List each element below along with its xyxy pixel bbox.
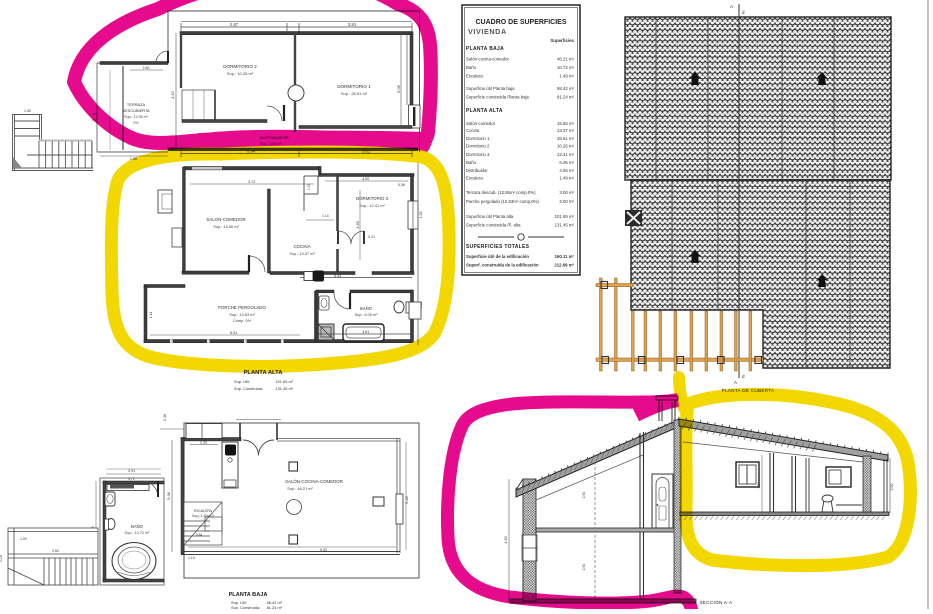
svg-text:101.69 m²: 101.69 m²: [275, 379, 293, 384]
svg-text:Sup.: 10.63 m²: Sup.: 10.63 m²: [229, 312, 255, 317]
svg-text:SUPERFICIES TOTALES: SUPERFICIES TOTALES: [466, 244, 530, 250]
svg-text:Superficie útil Planta alta: Superficie útil Planta alta: [466, 214, 514, 219]
svg-text:Dormitorio 3: Dormitorio 3: [466, 152, 490, 157]
svg-text:Sup.: 13.37 m²: Sup.: 13.37 m²: [289, 251, 315, 256]
svg-text:10.72 m²: 10.72 m²: [557, 65, 575, 70]
svg-text:2.36: 2.36: [163, 414, 167, 421]
svg-text:6.28: 6.28: [405, 496, 409, 503]
svg-text:Salón-comedor: Salón-comedor: [466, 121, 496, 126]
svg-text:Sup.: 6.05 m²: Sup.: 6.05 m²: [355, 313, 379, 317]
svg-text:Comp. 0%: Comp. 0%: [233, 318, 252, 323]
svg-text:2.91: 2.91: [128, 469, 135, 473]
svg-text:PLANTA BAJA: PLANTA BAJA: [229, 592, 268, 598]
svg-text:3.21: 3.21: [368, 235, 375, 239]
svg-text:ESCALERA: ESCALERA: [194, 509, 213, 513]
svg-text:1.49 m²: 1.49 m²: [559, 176, 574, 181]
svg-text:Superficie construida Pl. alta: Superficie construida Pl. alta: [466, 223, 521, 228]
svg-text:2.11: 2.11: [149, 312, 153, 319]
svg-text:Superficies: Superficies: [550, 38, 574, 43]
svg-text:3.81: 3.81: [348, 22, 357, 27]
svg-text:13.37 m²: 13.37 m²: [557, 128, 575, 133]
svg-text:2.18: 2.18: [0, 555, 3, 562]
svg-text:2.54: 2.54: [757, 482, 761, 489]
svg-text:0%: 0%: [133, 121, 139, 125]
svg-text:Escalera: Escalera: [466, 176, 483, 181]
svg-text:1.14: 1.14: [322, 214, 329, 218]
svg-text:131.45 m²: 131.45 m²: [275, 386, 293, 391]
svg-text:Superficie útil de la edificac: Superficie útil de la edificación: [466, 254, 529, 259]
svg-text:Sup.: 10.72 m²: Sup.: 10.72 m²: [125, 531, 151, 535]
svg-text:A: A: [730, 4, 733, 9]
svg-text:81.24 m²: 81.24 m²: [267, 605, 283, 609]
svg-text:3.72: 3.72: [128, 477, 135, 481]
svg-text:SALÓN-COCINA-COMEDOR: SALÓN-COCINA-COMEDOR: [285, 479, 343, 484]
svg-text:Sup.: 15.56 m²: Sup.: 15.56 m²: [213, 224, 239, 229]
svg-text:DESCUBIERTA: DESCUBIERTA: [122, 108, 150, 113]
svg-text:Sup. Construida:: Sup. Construida:: [234, 386, 263, 391]
svg-text:5.38: 5.38: [167, 492, 171, 499]
svg-text:4.50: 4.50: [504, 536, 508, 543]
svg-text:25.61 m²: 25.61 m²: [557, 136, 575, 141]
svg-text:Terraza descub. (12.95m² comp.: Terraza descub. (12.95m² comp.0%): [466, 190, 536, 195]
svg-text:4.26: 4.26: [419, 212, 423, 219]
svg-text:6.51: 6.51: [230, 331, 237, 335]
svg-text:15.56 m²: 15.56 m²: [557, 121, 575, 126]
svg-text:2.83: 2.83: [143, 66, 150, 70]
svg-text:VIVIENDA: VIVIENDA: [468, 27, 507, 36]
svg-text:3.61: 3.61: [362, 330, 369, 334]
svg-text:212.69 m²: 212.69 m²: [554, 263, 574, 268]
svg-text:Baño: Baño: [466, 65, 477, 70]
svg-text:5.06: 5.06: [396, 84, 401, 93]
svg-text:2.87: 2.87: [230, 22, 239, 27]
svg-text:160.11 m²: 160.11 m²: [555, 254, 575, 259]
svg-text:DORMITORIO 2: DORMITORIO 2: [223, 64, 257, 69]
svg-text:1.10: 1.10: [188, 556, 195, 560]
svg-text:58.42 m²: 58.42 m²: [557, 86, 575, 91]
svg-text:1.00: 1.00: [20, 537, 27, 541]
svg-text:SALON-COMEDOR: SALON-COMEDOR: [206, 217, 245, 222]
svg-text:Sup.: 12.41 m²: Sup.: 12.41 m²: [359, 203, 385, 208]
svg-text:4.42: 4.42: [170, 90, 175, 99]
svg-text:Sup. Construida:: Sup. Construida:: [231, 605, 260, 609]
svg-text:DORMITORIO 1: DORMITORIO 1: [337, 84, 371, 89]
svg-text:Superficie útil Planta baja: Superficie útil Planta baja: [466, 86, 515, 91]
svg-text:2.50: 2.50: [890, 484, 894, 491]
svg-text:Sup.: 12.95 m²: Sup.: 12.95 m²: [124, 115, 148, 119]
svg-text:BAÑO: BAÑO: [360, 306, 373, 311]
svg-text:3.72: 3.72: [248, 180, 255, 184]
svg-text:A: A: [734, 380, 737, 385]
svg-text:131.45 m²: 131.45 m²: [555, 223, 575, 228]
svg-text:COCINA: COCINA: [293, 244, 310, 249]
svg-text:3.00 m²: 3.00 m²: [559, 190, 574, 195]
svg-text:4.00: 4.00: [362, 177, 369, 181]
svg-text:Sup.: 10.26 m²: Sup.: 10.26 m²: [227, 71, 254, 76]
svg-text:81.24 m²: 81.24 m²: [557, 95, 575, 100]
svg-text:BAÑO: BAÑO: [131, 524, 144, 529]
svg-text:2.50: 2.50: [582, 564, 586, 571]
svg-text:1.51: 1.51: [307, 183, 311, 190]
svg-text:DORMITORIO 3: DORMITORIO 3: [356, 196, 389, 201]
svg-text:2.50: 2.50: [52, 549, 59, 553]
svg-text:Dormitorio 1: Dormitorio 1: [466, 136, 490, 141]
svg-text:Distribuidor: Distribuidor: [466, 168, 488, 173]
svg-text:6.05 m²: 6.05 m²: [559, 160, 574, 165]
svg-text:Cocina: Cocina: [466, 128, 480, 133]
svg-text:Sup.: 25.61 m²: Sup.: 25.61 m²: [341, 91, 368, 96]
svg-text:Baño: Baño: [466, 160, 477, 165]
svg-text:10.26 m²: 10.26 m²: [557, 144, 575, 149]
svg-text:2.50: 2.50: [582, 492, 586, 499]
svg-text:3.00 m²: 3.00 m²: [559, 199, 574, 204]
svg-text:Sup.: 46.21 m²: Sup.: 46.21 m²: [287, 486, 313, 491]
svg-text:Superf. construida de la edifi: Superf. construida de la edificación: [466, 263, 539, 268]
svg-text:Sup. Util:: Sup. Util:: [234, 379, 250, 384]
svg-text:CUADRO DE SUPERFICIES: CUADRO DE SUPERFICIES: [475, 19, 566, 26]
svg-text:101.69 m²: 101.69 m²: [555, 214, 575, 219]
svg-text:0.36: 0.36: [398, 183, 405, 187]
svg-text:Sup.(-1.40m²) 0: Sup.(-1.40m²) 0: [192, 514, 215, 518]
svg-text:Porche pergolado (10.63m² comp: Porche pergolado (10.63m² comp.0%): [466, 199, 539, 204]
svg-text:9.02: 9.02: [320, 548, 327, 552]
svg-text:12.41 m²: 12.41 m²: [557, 152, 575, 157]
svg-text:TERRAZA: TERRAZA: [127, 102, 146, 107]
svg-text:PORCHE PERGOLADO: PORCHE PERGOLADO: [218, 305, 266, 310]
svg-text:PLANTA ALTA: PLANTA ALTA: [466, 108, 503, 114]
svg-text:0.84: 0.84: [196, 533, 202, 537]
svg-text:5.44: 5.44: [334, 274, 341, 278]
svg-text:1.49 m²: 1.49 m²: [559, 74, 574, 79]
svg-text:Salón-cocina-comedor: Salón-cocina-comedor: [466, 57, 510, 62]
svg-text:2.20: 2.20: [200, 441, 207, 445]
svg-text:46.21 m²: 46.21 m²: [557, 57, 575, 62]
svg-text:Escalera: Escalera: [466, 74, 483, 79]
svg-text:4.65: 4.65: [356, 221, 360, 228]
svg-text:Dormitorio 2: Dormitorio 2: [466, 144, 490, 149]
svg-text:SECCIÓN A-A: SECCIÓN A-A: [700, 599, 734, 605]
svg-text:4.55 m²: 4.55 m²: [559, 168, 574, 173]
svg-text:1.00: 1.00: [24, 109, 31, 113]
svg-text:Superficie construida Planta b: Superficie construida Planta baja: [466, 95, 529, 100]
svg-text:PLANTA BAJA: PLANTA BAJA: [466, 46, 504, 52]
